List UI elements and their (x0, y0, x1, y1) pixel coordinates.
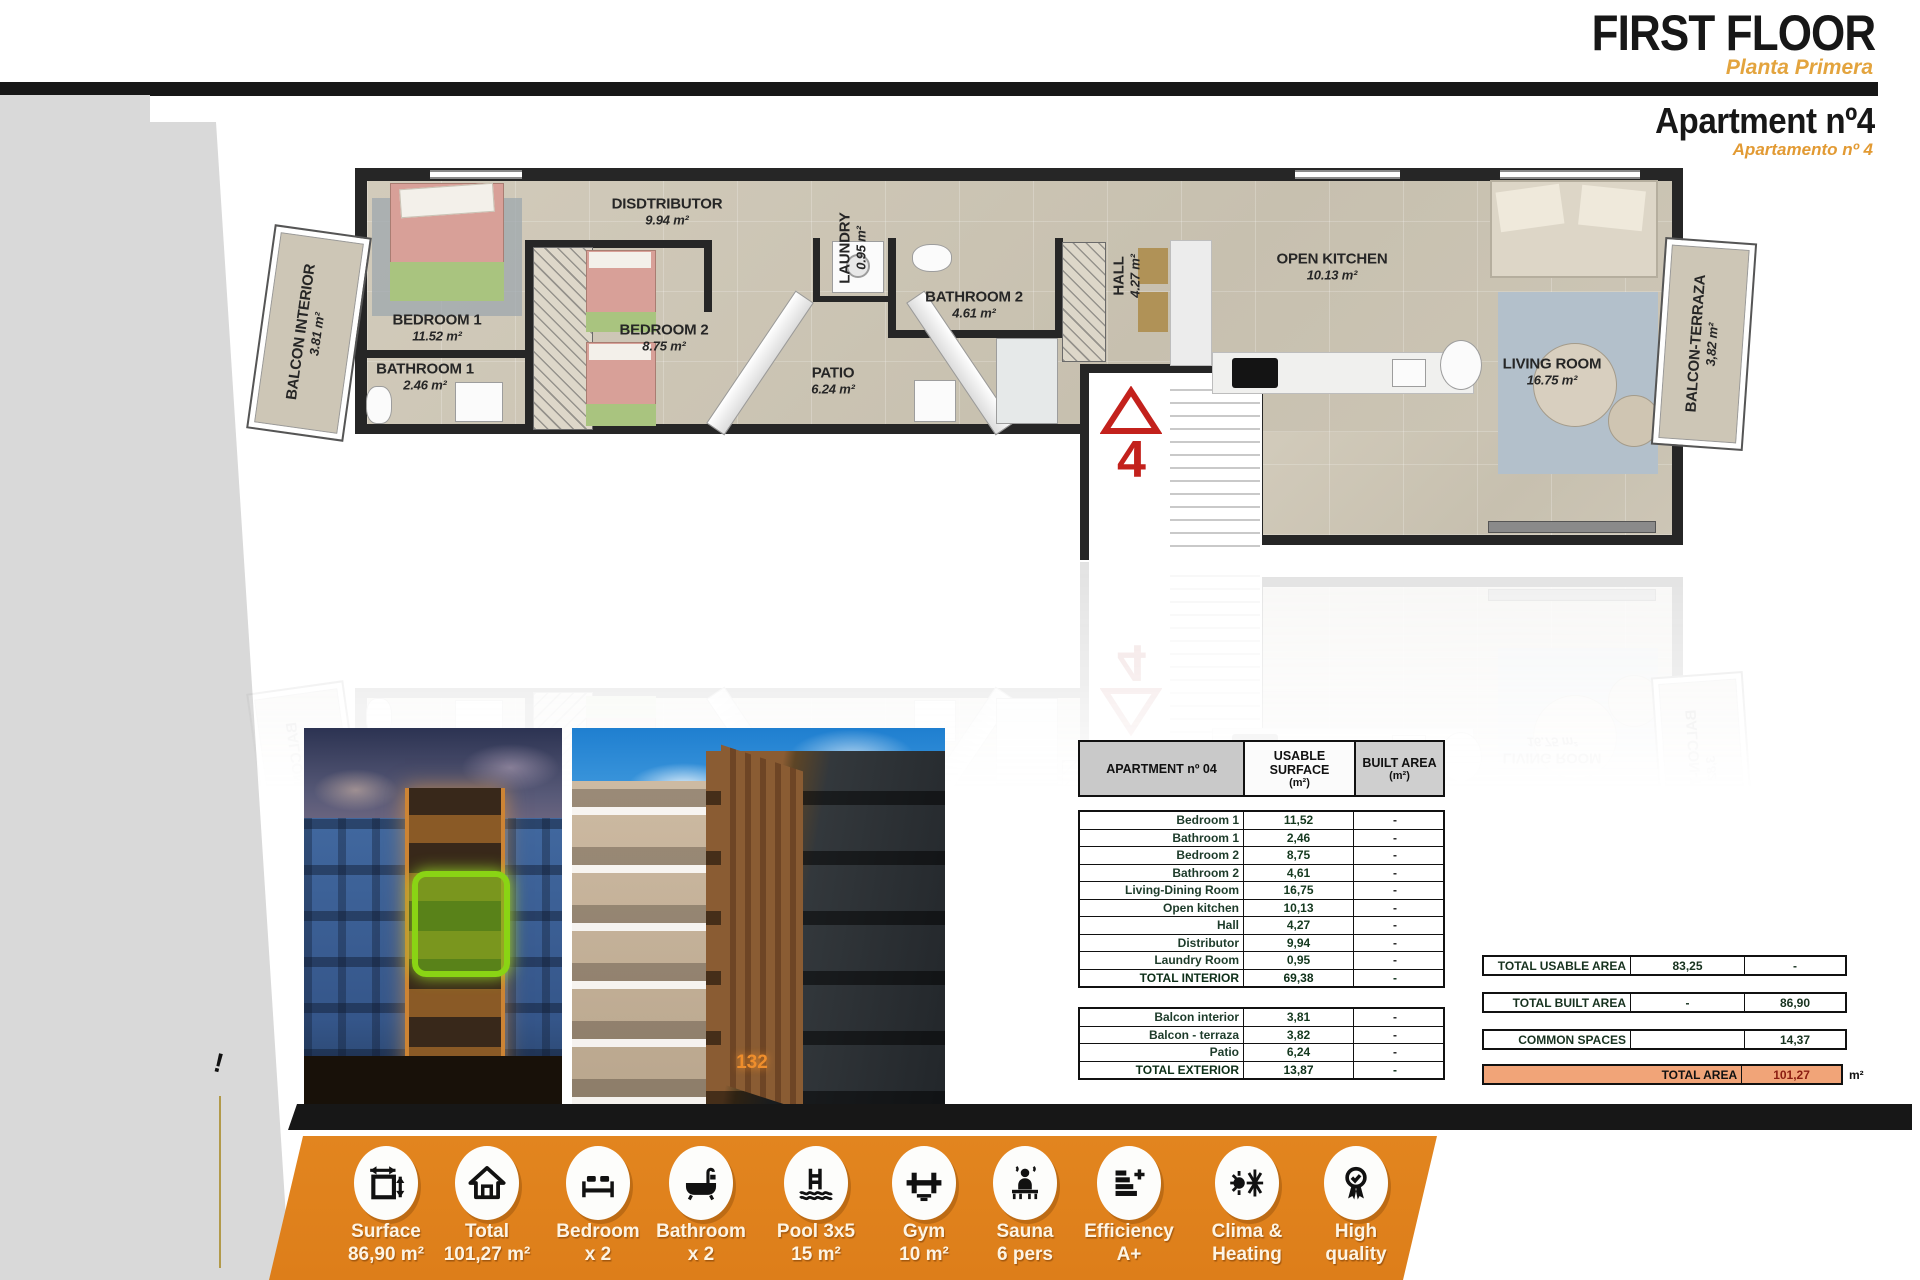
surface-row: Balcon interior3,81- (1080, 1009, 1443, 1026)
feature-value: 6 pers (965, 1243, 1085, 1266)
room-label-patio: PATIO6.24 m² (811, 365, 854, 396)
feature-value: x 2 (538, 1243, 658, 1266)
surface-row: Living-Dining Room16,75- (1080, 881, 1443, 899)
feature-value: 15 m² (756, 1243, 876, 1266)
feature-item: Sauna6 pers (965, 1146, 1085, 1266)
room-label-bedroom1: BEDROOM 111.52 m² (392, 312, 481, 343)
boiler (1440, 340, 1482, 390)
balcony-terraza: BALCON-TERRAZA 3,82 m² (1653, 239, 1755, 449)
feature-value: quality (1296, 1243, 1416, 1266)
surface-row: Balcon - terraza3,82- (1080, 1026, 1443, 1044)
measure-icon (354, 1146, 418, 1220)
photo-day-facade: 132 (572, 728, 945, 1105)
surface-row: TOTAL EXTERIOR13,87- (1080, 1061, 1443, 1079)
feature-item: Highquality (1296, 1146, 1416, 1266)
sink (914, 380, 956, 422)
sun-snowflake-icon (1215, 1146, 1279, 1220)
feature-label: Bathroom (641, 1220, 761, 1243)
room-label-hall: HALL4.27 m² (1111, 254, 1142, 297)
surface-row: Open kitchen10,13- (1080, 899, 1443, 917)
feature-label: Efficiency (1069, 1220, 1189, 1243)
exterior-surface-rows: Balcon interior3,81-Balcon - terraza3,82… (1078, 1007, 1445, 1080)
house-icon (455, 1146, 519, 1220)
margin-line (219, 1096, 221, 1268)
room-label-laundry: LAUNDRY0.95 m² (837, 212, 868, 283)
kitchen-sink (1392, 359, 1426, 387)
total-area-row: TOTAL AREA 101,27 (1482, 1064, 1843, 1085)
closet (1062, 242, 1106, 362)
feature-value: 101,27 m² (427, 1243, 547, 1266)
staircase (1170, 378, 1260, 556)
feature-item: Bathroomx 2 (641, 1146, 761, 1266)
feature-value: A+ (1069, 1243, 1189, 1266)
feature-item: Clima &Heating (1187, 1146, 1307, 1266)
pool-ladder-icon (784, 1146, 848, 1220)
bed-icon (566, 1146, 630, 1220)
feature-label: Total (427, 1220, 547, 1243)
bottom-divider-bar (0, 1104, 1920, 1130)
feature-label: Clima & (1187, 1220, 1307, 1243)
feature-label: Bedroom (538, 1220, 658, 1243)
unit-marker-number: 4 (1117, 430, 1146, 490)
unit-marker-triangle (1100, 386, 1162, 436)
kitchen-column (1170, 240, 1212, 366)
feature-value: x 2 (641, 1243, 761, 1266)
toilet (912, 244, 952, 272)
room-label-bedroom2: BEDROOM 28.75 m² (619, 322, 708, 353)
tv-bench (1488, 521, 1656, 533)
surface-row: Patio6,24- (1080, 1043, 1443, 1061)
photo-night-facade (304, 728, 562, 1105)
room-label-distributor: DISDTRIBUTOR9.94 m² (612, 196, 723, 227)
efficiency-icon (1097, 1146, 1161, 1220)
surface-row: Distributor9,94- (1080, 934, 1443, 952)
surface-row: Bathroom 12,46- (1080, 829, 1443, 847)
dumbbell-icon (892, 1146, 956, 1220)
hob (1232, 358, 1278, 388)
surface-row: Bathroom 24,61- (1080, 864, 1443, 882)
shower (996, 338, 1058, 424)
bathtub-icon (669, 1146, 733, 1220)
surface-row: Hall4,27- (1080, 916, 1443, 934)
feature-item: Bedroomx 2 (538, 1146, 658, 1266)
surface-row: TOTAL INTERIOR69,38- (1080, 969, 1443, 987)
interior-surface-rows: Bedroom 111,52-Bathroom 12,46-Bedroom 28… (1078, 810, 1445, 988)
feature-label: High (1296, 1220, 1416, 1243)
feature-item: Pool 3x515 m² (756, 1146, 876, 1266)
balcony-interior: BALCON INTERIOR 3.81 m² (248, 226, 369, 439)
room-label-living-room: LIVING ROOM16.75 m² (1503, 356, 1602, 387)
room-label-bathroom2: BATHROOM 24.61 m² (925, 289, 1023, 320)
feature-item: Total101,27 m² (427, 1146, 547, 1266)
feature-label: Pool 3x5 (756, 1220, 876, 1243)
wardrobe (533, 247, 593, 430)
feature-value: Heating (1187, 1243, 1307, 1266)
feature-item: EfficiencyA+ (1069, 1146, 1189, 1266)
room-label-open-kitchen: OPEN KITCHEN10.13 m² (1277, 251, 1388, 282)
room-label-bathroom1: BATHROOM 12.46 m² (376, 361, 474, 392)
page: FIRST FLOOR Planta Primera Apartment nº4… (0, 0, 1920, 1280)
stool (1138, 292, 1168, 332)
surface-row: Laundry Room0,95- (1080, 951, 1443, 969)
surface-row: Bedroom 28,75- (1080, 846, 1443, 864)
medal-icon (1324, 1146, 1388, 1220)
sauna-icon (993, 1146, 1057, 1220)
floor-plan: 4 (0, 0, 1920, 640)
feature-label: Sauna (965, 1220, 1085, 1243)
building-number: 132 (736, 1052, 768, 1074)
surface-row: Bedroom 111,52- (1080, 812, 1443, 829)
